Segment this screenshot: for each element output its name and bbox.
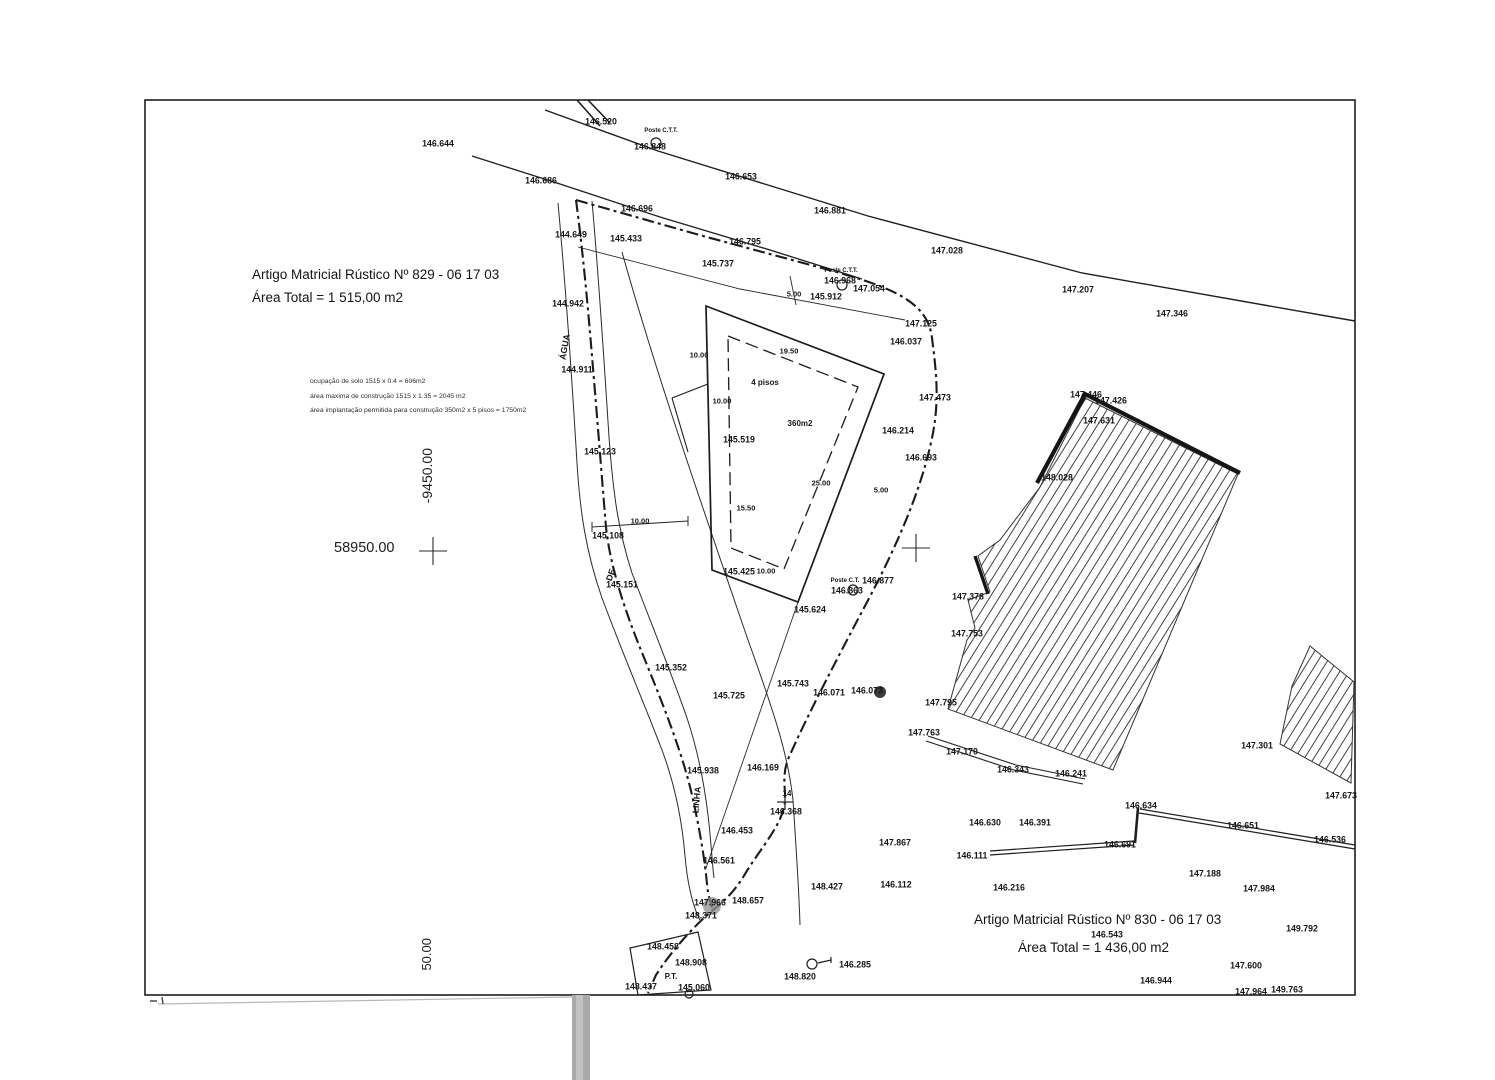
plot-829-boundary (576, 200, 937, 993)
elevation-label: 146.696 (621, 205, 653, 214)
dimension-label: 25.00 (812, 479, 831, 487)
elevation-label: 147.170 (946, 748, 978, 757)
elevation-label: 147.867 (879, 839, 911, 848)
elevation-label: 148.437 (625, 983, 657, 992)
dimension-label: 10.00 (713, 397, 732, 405)
elevation-label: 146.073 (851, 687, 883, 696)
scan-artifacts (150, 995, 590, 1080)
elevation-label: 146.214 (882, 427, 914, 436)
elevation-label: 146.653 (725, 173, 757, 182)
road-lines (472, 100, 1355, 321)
elevation-label: 144.649 (555, 231, 587, 240)
elevation-label: 146.630 (969, 819, 1001, 828)
plot-830-boundary-lines (926, 736, 1355, 855)
elevation-label: 147.763 (908, 729, 940, 738)
existing-building-hatched (948, 394, 1240, 770)
poste-ctt-label: Poste C.T.T. (644, 128, 677, 134)
elevation-label: 145.108 (592, 532, 624, 541)
building-inner-dashed (728, 336, 858, 569)
secondary-hatched-building (1280, 646, 1354, 783)
elevation-label: 145.938 (687, 767, 719, 776)
elevation-label: 146.453 (721, 827, 753, 836)
elevation-label: 147.207 (1062, 286, 1094, 295)
grid-cross-left (419, 537, 447, 565)
elevation-label: 146.285 (839, 961, 871, 970)
dimension-label: 5.00 (874, 486, 889, 494)
grid-coordinate-x: 58950.00 (334, 540, 394, 556)
survey-plan-sheet: 146.644146.520Poste C.T.T.146.848146.686… (0, 0, 1495, 1080)
elevation-label: 145.151 (606, 581, 638, 590)
elevation-label: 149.792 (1286, 925, 1318, 934)
note-line: área implantação permitida para construç… (310, 404, 526, 419)
elevation-label: 146.368 (770, 808, 802, 817)
elevation-label: 149.763 (1271, 986, 1303, 995)
elevation-label: 147.964 (1235, 988, 1267, 997)
pt-label: P.T. (665, 973, 678, 981)
dimension-label: 19.50 (780, 347, 799, 355)
elevation-label: 147.473 (919, 394, 951, 403)
elevation-label: 146.071 (813, 689, 845, 698)
elevation-label: 145.433 (610, 235, 642, 244)
elevation-label: 145.425 (723, 568, 755, 577)
elevation-label: 146.111 (957, 852, 988, 861)
elevation-label: 147.673 (1325, 792, 1357, 801)
dimension-label: 15.50 (737, 504, 756, 512)
dimension-label: 10.00 (757, 567, 776, 575)
elevation-label: 145.352 (655, 664, 687, 673)
elevation-label: 147.984 (1243, 885, 1275, 894)
elevation-label: 146.693 (905, 454, 937, 463)
building-floors-label: 4 pisos (751, 379, 779, 387)
dimension-label: 5.00 (787, 290, 802, 298)
elevation-label: 146.391 (1019, 819, 1051, 828)
elevation-label: 144.942 (552, 300, 584, 309)
elevation-label: 147.966 (694, 899, 726, 908)
elevation-label: 147.301 (1241, 742, 1273, 751)
elevation-label: 146.848 (634, 143, 666, 152)
poste-symbols (651, 138, 858, 969)
elevation-label: 144.911 (561, 366, 592, 375)
elevation-label: 146.216 (993, 884, 1025, 893)
elevation-label: 147.346 (1156, 310, 1188, 319)
elevation-label: 148.908 (675, 959, 707, 968)
elevation-label: 147.378 (952, 593, 984, 602)
elevation-label: 145.743 (777, 680, 809, 689)
elevation-label: 146.037 (890, 338, 922, 347)
elevation-label: 148.028 (1041, 474, 1073, 483)
elevation-label: 146.343 (997, 766, 1029, 775)
construction-notes: ocupação de solo 1515 x 0.4 = 606m2 área… (310, 375, 526, 419)
poste-ctt-label: Poste C.T. (831, 578, 860, 584)
elevation-label: 145.060 (678, 984, 710, 993)
elevation-label: 146.241 (1055, 770, 1087, 779)
elevation-label: 145.725 (713, 692, 745, 701)
elevation-label: 146.944 (1140, 977, 1172, 986)
elevation-label: 146.644 (422, 140, 454, 149)
elevation-label: 146.968 (824, 277, 856, 286)
elevation-label: 148.820 (784, 973, 816, 982)
elevation-label: 147.054 (853, 285, 885, 294)
elevation-label: 147.600 (1230, 962, 1262, 971)
note-line: ocupação de solo 1515 x 0.4 = 606m2 (310, 375, 526, 390)
elevation-label: 145.624 (794, 606, 826, 615)
survey-drawing (0, 0, 1495, 1080)
grid-coordinate-y: -9450.00 (419, 448, 435, 503)
elevation-label: 148.371 (685, 912, 717, 921)
elevation-label: 147.125 (905, 320, 937, 329)
elevation-label: 147.631 (1083, 417, 1115, 426)
dimension-label: 10.00 (631, 517, 650, 525)
survey-point-dots (703, 686, 886, 915)
plot-829-title-block: Artigo Matricial Rústico Nº 829 - 06 17 … (252, 267, 499, 305)
elevation-label: 148.657 (732, 897, 764, 906)
elevation-label: 146.634 (1125, 802, 1157, 811)
grid-coordinate-partial: 50.00 (419, 938, 434, 971)
plot-830-title-block: Artigo Matricial Rústico Nº 830 - 06 17 … (974, 912, 1221, 955)
elevation-label: 146.112 (880, 881, 911, 890)
elevation-label: 145.519 (723, 436, 755, 445)
elevation-label: 146.863 (831, 587, 863, 596)
elevation-label: 145.912 (810, 293, 842, 302)
note-line: área maxima de construção 1515 x 1.35 = … (310, 390, 526, 405)
elevation-label: 148.458 (647, 943, 679, 952)
elevation-label: 146.561 (703, 857, 735, 866)
elevation-label: 147.426 (1095, 397, 1127, 406)
elevation-label: 145.737 (702, 260, 734, 269)
building-area-label: 360m2 (788, 420, 813, 428)
plot-829-article: Artigo Matricial Rústico Nº 829 - 06 17 … (252, 267, 499, 282)
elevation-label: 146.691 (1104, 841, 1136, 850)
elevation-label: 147.753 (951, 630, 983, 639)
elevation-label: 146.877 (862, 577, 894, 586)
elevation-label: 146.795 (729, 238, 761, 247)
elevation-label: 146.169 (747, 764, 779, 773)
grid-cross-center (902, 534, 930, 562)
plot-830-area: Área Total = 1 436,00 m2 (1018, 940, 1221, 955)
elevation-label: 148.427 (811, 883, 843, 892)
elevation-label: 146.536 (1314, 836, 1346, 845)
plot-830-article: Artigo Matricial Rústico Nº 830 - 06 17 … (974, 912, 1221, 927)
building-annex-lines (672, 384, 708, 452)
elevation-label: 146.881 (814, 207, 846, 216)
elevation-label: 145.123 (584, 448, 616, 457)
elevation-label: 146.686 (525, 177, 557, 186)
elevation-label: 147.795 (925, 699, 957, 708)
plot-829-area: Área Total = 1 515,00 m2 (252, 290, 499, 305)
dimension-label: 10.00 (690, 351, 709, 359)
point-number-label: 14 (783, 790, 792, 798)
elevation-label: 146.651 (1227, 822, 1259, 831)
elevation-label: 147.028 (931, 247, 963, 256)
elevation-label: 147.188 (1189, 870, 1221, 879)
poste-arrow (818, 957, 831, 963)
elevation-label: 146.520 (585, 118, 617, 127)
poste-ctt-label: Poste C.T.T. (824, 268, 857, 274)
poste-icon (807, 959, 817, 969)
